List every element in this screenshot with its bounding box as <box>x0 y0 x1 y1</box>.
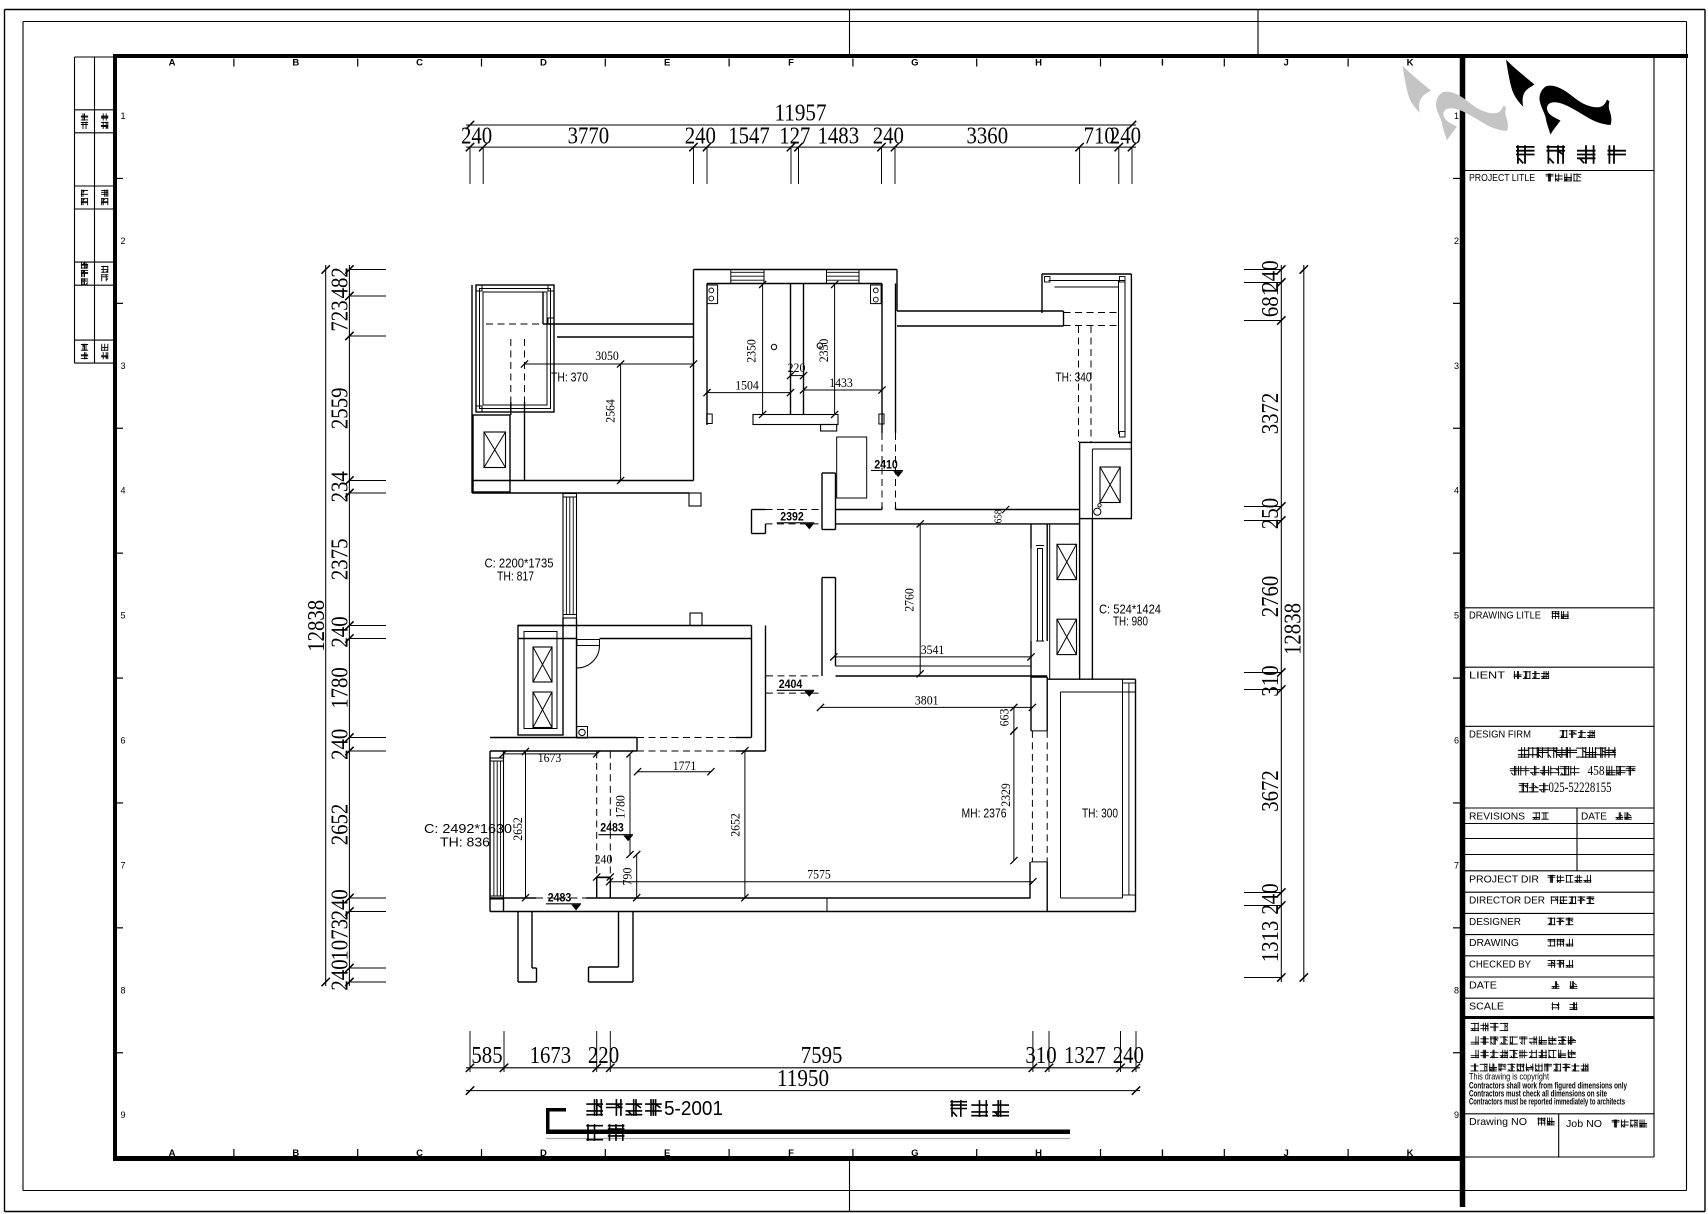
svg-text:6: 6 <box>121 736 126 746</box>
svg-text:C: C <box>416 1148 423 1159</box>
svg-text:240: 240 <box>1258 883 1284 914</box>
svg-text:SCALE: SCALE <box>1469 1001 1504 1013</box>
svg-text:2: 2 <box>1454 236 1459 246</box>
svg-text:H: H <box>1035 58 1042 69</box>
svg-text:1780: 1780 <box>613 795 628 819</box>
svg-text:J: J <box>1284 1148 1289 1159</box>
svg-text:7: 7 <box>121 860 126 870</box>
svg-text:2559: 2559 <box>328 387 354 429</box>
svg-text:2: 2 <box>121 236 126 246</box>
svg-text:A: A <box>169 58 176 69</box>
svg-text:9: 9 <box>1454 1110 1459 1120</box>
svg-text:1: 1 <box>1454 111 1459 121</box>
svg-text:D: D <box>540 1148 547 1159</box>
svg-text:240: 240 <box>461 124 492 150</box>
svg-text:3770: 3770 <box>568 124 610 150</box>
svg-text:F: F <box>788 1148 794 1159</box>
svg-text:1673: 1673 <box>530 1043 572 1069</box>
svg-text:K: K <box>1407 1148 1414 1159</box>
svg-text:4: 4 <box>1454 486 1459 496</box>
svg-text:6: 6 <box>1454 736 1459 746</box>
svg-text:2652: 2652 <box>510 817 525 841</box>
svg-text:3372: 3372 <box>1258 393 1284 435</box>
svg-text:3: 3 <box>1454 361 1459 371</box>
svg-text:240: 240 <box>328 889 354 920</box>
svg-text:B: B <box>292 1148 299 1159</box>
svg-text:5-2001: 5-2001 <box>664 1097 723 1120</box>
svg-text:E: E <box>664 1148 670 1159</box>
svg-text:3050: 3050 <box>595 348 619 363</box>
svg-text:5: 5 <box>1454 611 1459 621</box>
svg-text:2652: 2652 <box>728 813 743 837</box>
svg-text:9: 9 <box>121 1110 126 1120</box>
svg-text:1483: 1483 <box>818 124 860 150</box>
svg-text:127: 127 <box>779 124 810 150</box>
svg-text:DESIGNER: DESIGNER <box>1469 916 1521 928</box>
svg-text:8: 8 <box>121 985 126 995</box>
svg-text:1504: 1504 <box>735 378 759 393</box>
svg-text:TH: 340: TH: 340 <box>1056 371 1092 385</box>
svg-text:240: 240 <box>328 729 354 760</box>
svg-text:REVISIONS: REVISIONS <box>1469 811 1525 823</box>
svg-text:DRAWING LITLE: DRAWING LITLE <box>1469 610 1541 622</box>
svg-text:MH: 2376: MH: 2376 <box>962 807 1007 821</box>
svg-text:2483: 2483 <box>548 893 572 905</box>
svg-text:2760: 2760 <box>902 588 917 612</box>
svg-text:B: B <box>292 58 299 69</box>
svg-text:5: 5 <box>121 611 126 621</box>
svg-text:310: 310 <box>1025 1043 1056 1069</box>
svg-text:1327: 1327 <box>1064 1043 1106 1069</box>
svg-text:240: 240 <box>1110 124 1141 150</box>
svg-text:4: 4 <box>121 486 126 496</box>
svg-text:D: D <box>540 58 547 69</box>
svg-text:F: F <box>788 58 794 69</box>
svg-text:458: 458 <box>1588 764 1605 779</box>
svg-text:681: 681 <box>1258 286 1284 317</box>
svg-text:DESIGN FIRM: DESIGN FIRM <box>1469 729 1531 741</box>
svg-text:3672: 3672 <box>1258 770 1284 812</box>
svg-text:658: 658 <box>994 510 1005 524</box>
svg-text:240: 240 <box>328 959 354 990</box>
svg-text:Job NO: Job NO <box>1566 1118 1602 1130</box>
svg-text:250: 250 <box>1258 498 1284 529</box>
svg-text:2404: 2404 <box>779 679 803 691</box>
svg-text:2392: 2392 <box>780 512 804 524</box>
svg-text:663: 663 <box>997 709 1012 727</box>
svg-text:1313: 1313 <box>1258 921 1284 963</box>
svg-text:240: 240 <box>328 616 354 647</box>
svg-text:3541: 3541 <box>921 642 945 657</box>
svg-text:482: 482 <box>328 267 354 298</box>
svg-text:C: 2200*1735: C: 2200*1735 <box>485 557 554 571</box>
svg-text:240: 240 <box>1113 1043 1144 1069</box>
svg-text:240: 240 <box>685 124 716 150</box>
svg-text:1073: 1073 <box>328 919 354 961</box>
svg-text:TH: 817: TH: 817 <box>497 570 534 584</box>
svg-text:CHECKED BY: CHECKED BY <box>1469 958 1531 970</box>
svg-text:DRAWING: DRAWING <box>1469 937 1519 949</box>
svg-text:585: 585 <box>471 1043 502 1069</box>
svg-text:K: K <box>1407 58 1414 69</box>
svg-text:2350: 2350 <box>816 339 831 363</box>
svg-text:TH: 980: TH: 980 <box>1113 615 1148 629</box>
svg-text:310: 310 <box>1258 665 1284 696</box>
svg-text:I: I <box>1161 1148 1164 1159</box>
svg-text:PROJECT DIR: PROJECT DIR <box>1469 873 1539 885</box>
svg-text:1433: 1433 <box>829 375 853 390</box>
svg-text:1: 1 <box>121 111 126 121</box>
svg-text:12838: 12838 <box>1281 603 1307 655</box>
svg-text:1780: 1780 <box>328 667 354 709</box>
svg-text:3801: 3801 <box>915 693 939 708</box>
svg-text:Drawing NO: Drawing NO <box>1469 1116 1527 1128</box>
svg-text:220: 220 <box>588 1043 619 1069</box>
svg-text:3360: 3360 <box>967 124 1009 150</box>
svg-text:2483: 2483 <box>600 823 624 835</box>
svg-text:Contractors must be reported i: Contractors must be reported immediately… <box>1469 1097 1625 1107</box>
svg-text:PROJECT LITLE: PROJECT LITLE <box>1469 172 1535 184</box>
svg-text:7575: 7575 <box>807 867 831 882</box>
svg-text:2350: 2350 <box>744 339 759 363</box>
svg-text:2329: 2329 <box>998 783 1013 807</box>
svg-text:1547: 1547 <box>728 124 770 150</box>
svg-text:790: 790 <box>620 868 635 886</box>
svg-text:G: G <box>911 1148 918 1159</box>
svg-text:12838: 12838 <box>304 600 330 652</box>
svg-text:7: 7 <box>1454 860 1459 870</box>
svg-text:723: 723 <box>328 300 354 331</box>
svg-text:220: 220 <box>788 360 806 375</box>
svg-text:DATE: DATE <box>1581 811 1607 823</box>
svg-text:E: E <box>664 58 670 69</box>
svg-text:TH: 836: TH: 836 <box>440 836 490 850</box>
svg-text:2375: 2375 <box>328 539 354 581</box>
svg-text:2564: 2564 <box>603 399 618 423</box>
svg-text:C: C <box>416 58 423 69</box>
svg-text:H: H <box>1035 1148 1042 1159</box>
svg-text:A: A <box>169 1148 176 1159</box>
svg-text:DATE: DATE <box>1469 980 1497 992</box>
svg-text:11957: 11957 <box>775 101 827 127</box>
svg-text:025-52228155: 025-52228155 <box>1549 780 1612 796</box>
svg-text:C: 2492*1630: C: 2492*1630 <box>424 822 512 836</box>
svg-text:1673: 1673 <box>538 750 562 765</box>
svg-text:J: J <box>1284 58 1289 69</box>
svg-text:240: 240 <box>873 124 904 150</box>
svg-text:G: G <box>911 58 918 69</box>
svg-text:TH: 300: TH: 300 <box>1082 807 1118 821</box>
svg-text:TH: 370: TH: 370 <box>551 371 588 385</box>
svg-text:8: 8 <box>1454 985 1459 995</box>
svg-text:I: I <box>1161 58 1164 69</box>
svg-text:11950: 11950 <box>777 1066 829 1092</box>
svg-text:234: 234 <box>328 471 354 502</box>
svg-text:LIENT: LIENT <box>1469 670 1506 682</box>
svg-text:2652: 2652 <box>328 804 354 846</box>
svg-text:DIRECTOR DER: DIRECTOR DER <box>1469 895 1545 907</box>
svg-text:1771: 1771 <box>673 758 697 773</box>
svg-text:2410: 2410 <box>874 460 898 472</box>
svg-text:240: 240 <box>595 852 613 867</box>
svg-text:3: 3 <box>121 361 126 371</box>
